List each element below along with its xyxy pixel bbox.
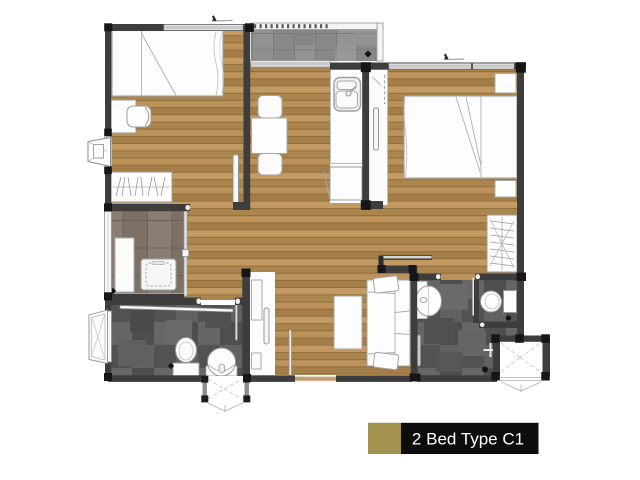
svg-text:2 Bed Type C1: 2 Bed Type C1 xyxy=(412,430,524,449)
